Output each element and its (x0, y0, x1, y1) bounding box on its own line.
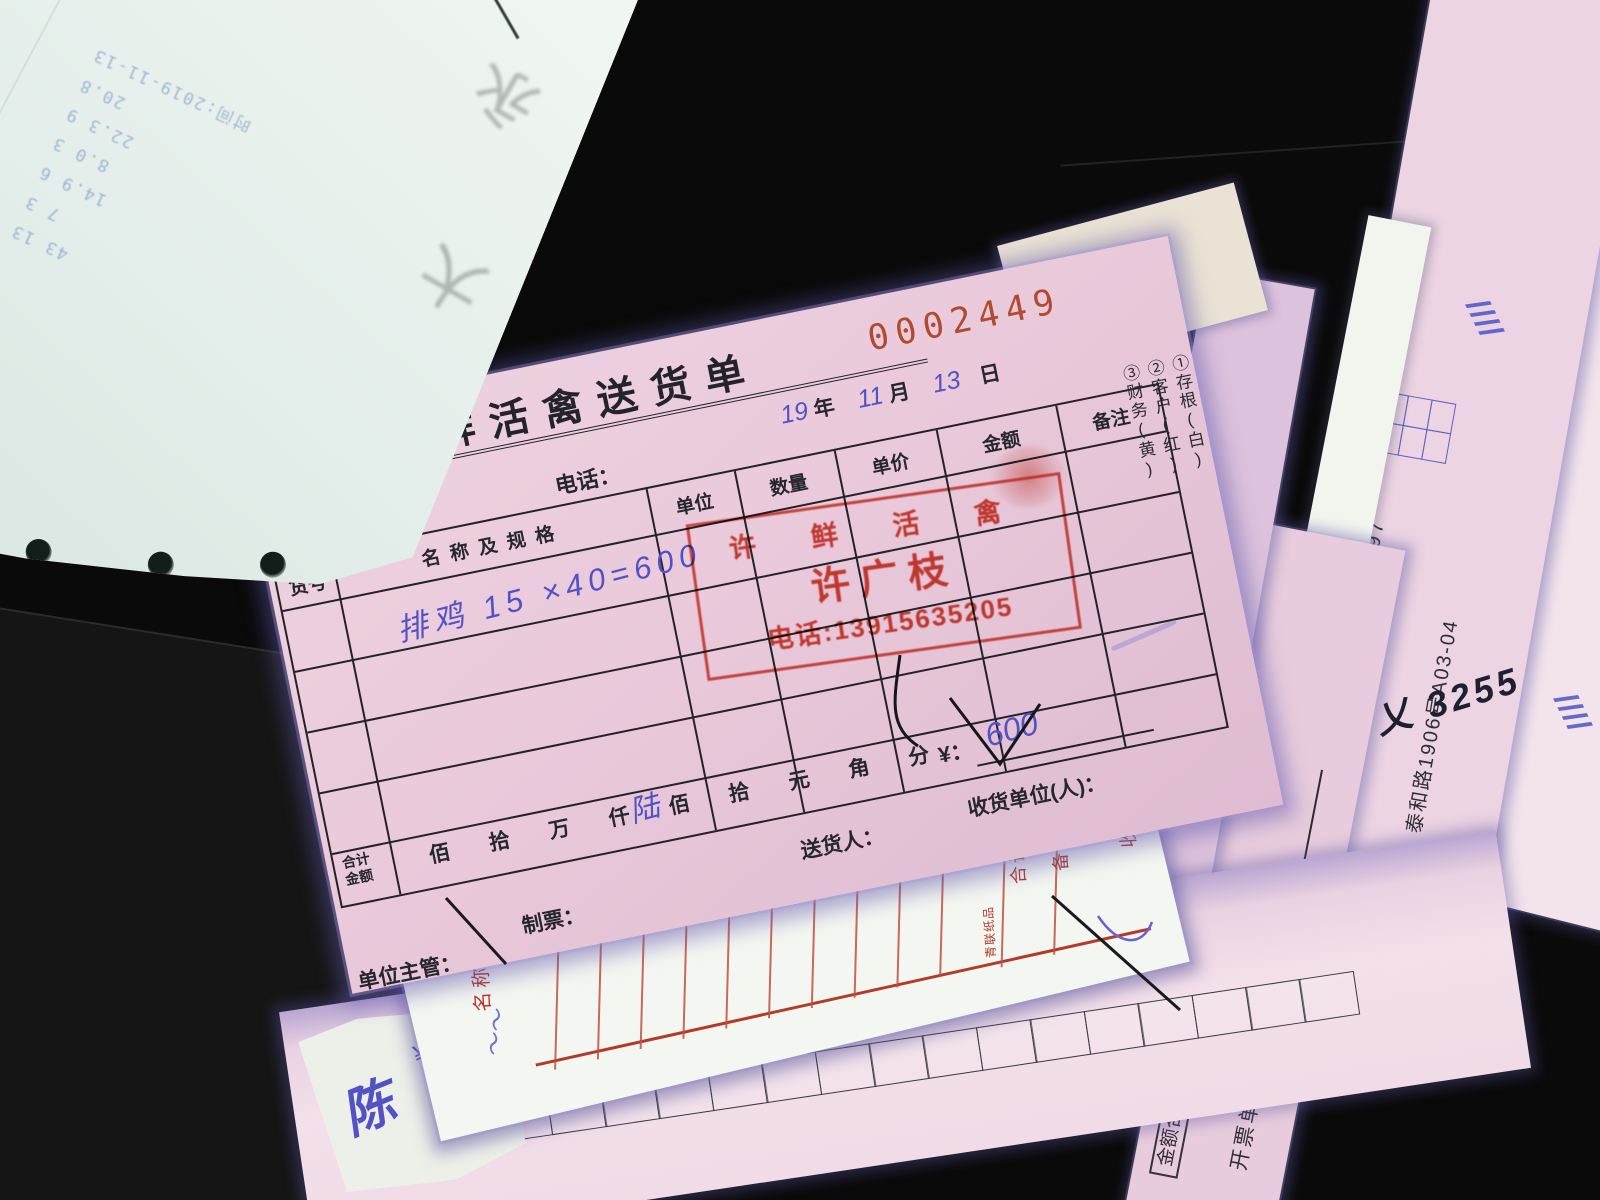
pen-stroke (950, 698, 1040, 764)
blue-ink-curl (1098, 916, 1152, 940)
pen-stroke (1052, 896, 1180, 1010)
pen-stroke (895, 655, 918, 746)
photo-of-receipt-stack: 电话：021-56690097 泰和路1906号A03-04 7 注 商铺地址：… (0, 0, 1600, 1200)
pen-marks-overlay (0, 0, 1600, 1200)
pen-stroke (446, 898, 506, 964)
